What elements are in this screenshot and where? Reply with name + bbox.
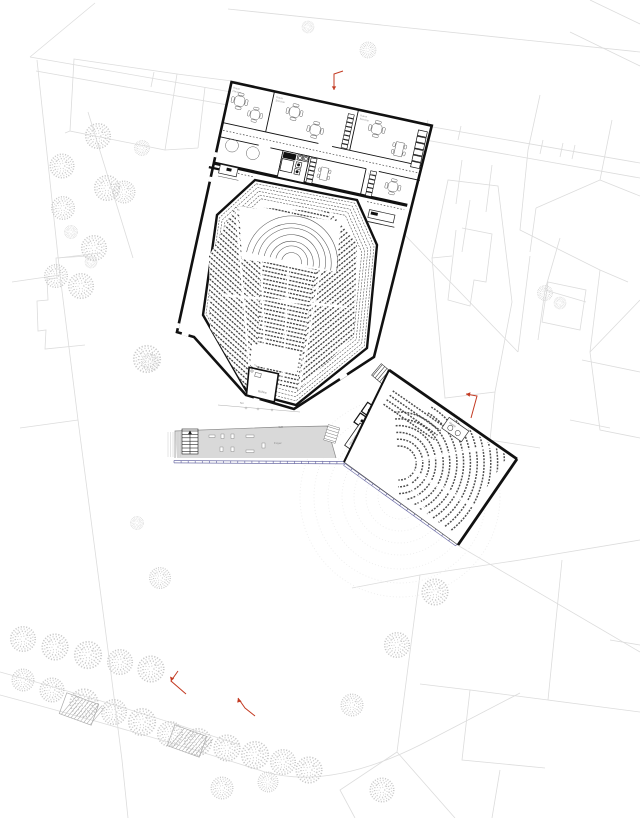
svg-text:Foyer: Foyer — [274, 441, 282, 445]
svg-text:4x8: 4x8 — [278, 425, 283, 429]
svg-text:5m: 5m — [240, 401, 245, 405]
